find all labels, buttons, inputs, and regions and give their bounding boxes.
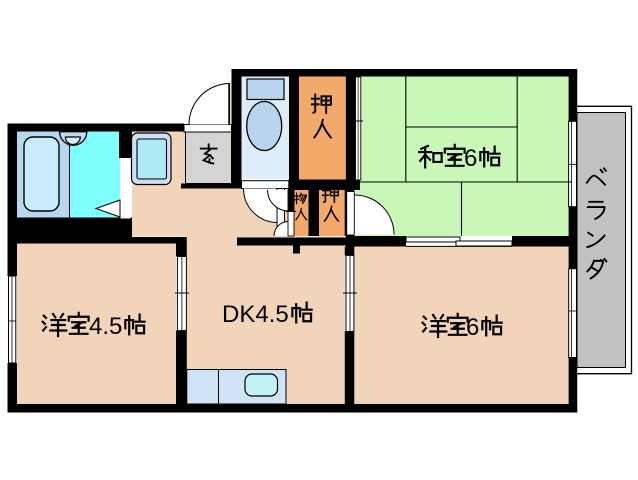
svg-text:6: 6 [466,314,479,341]
svg-text:4.5: 4.5 [89,313,122,340]
svg-text:6: 6 [464,145,477,172]
svg-text:DK4.5: DK4.5 [222,301,289,328]
